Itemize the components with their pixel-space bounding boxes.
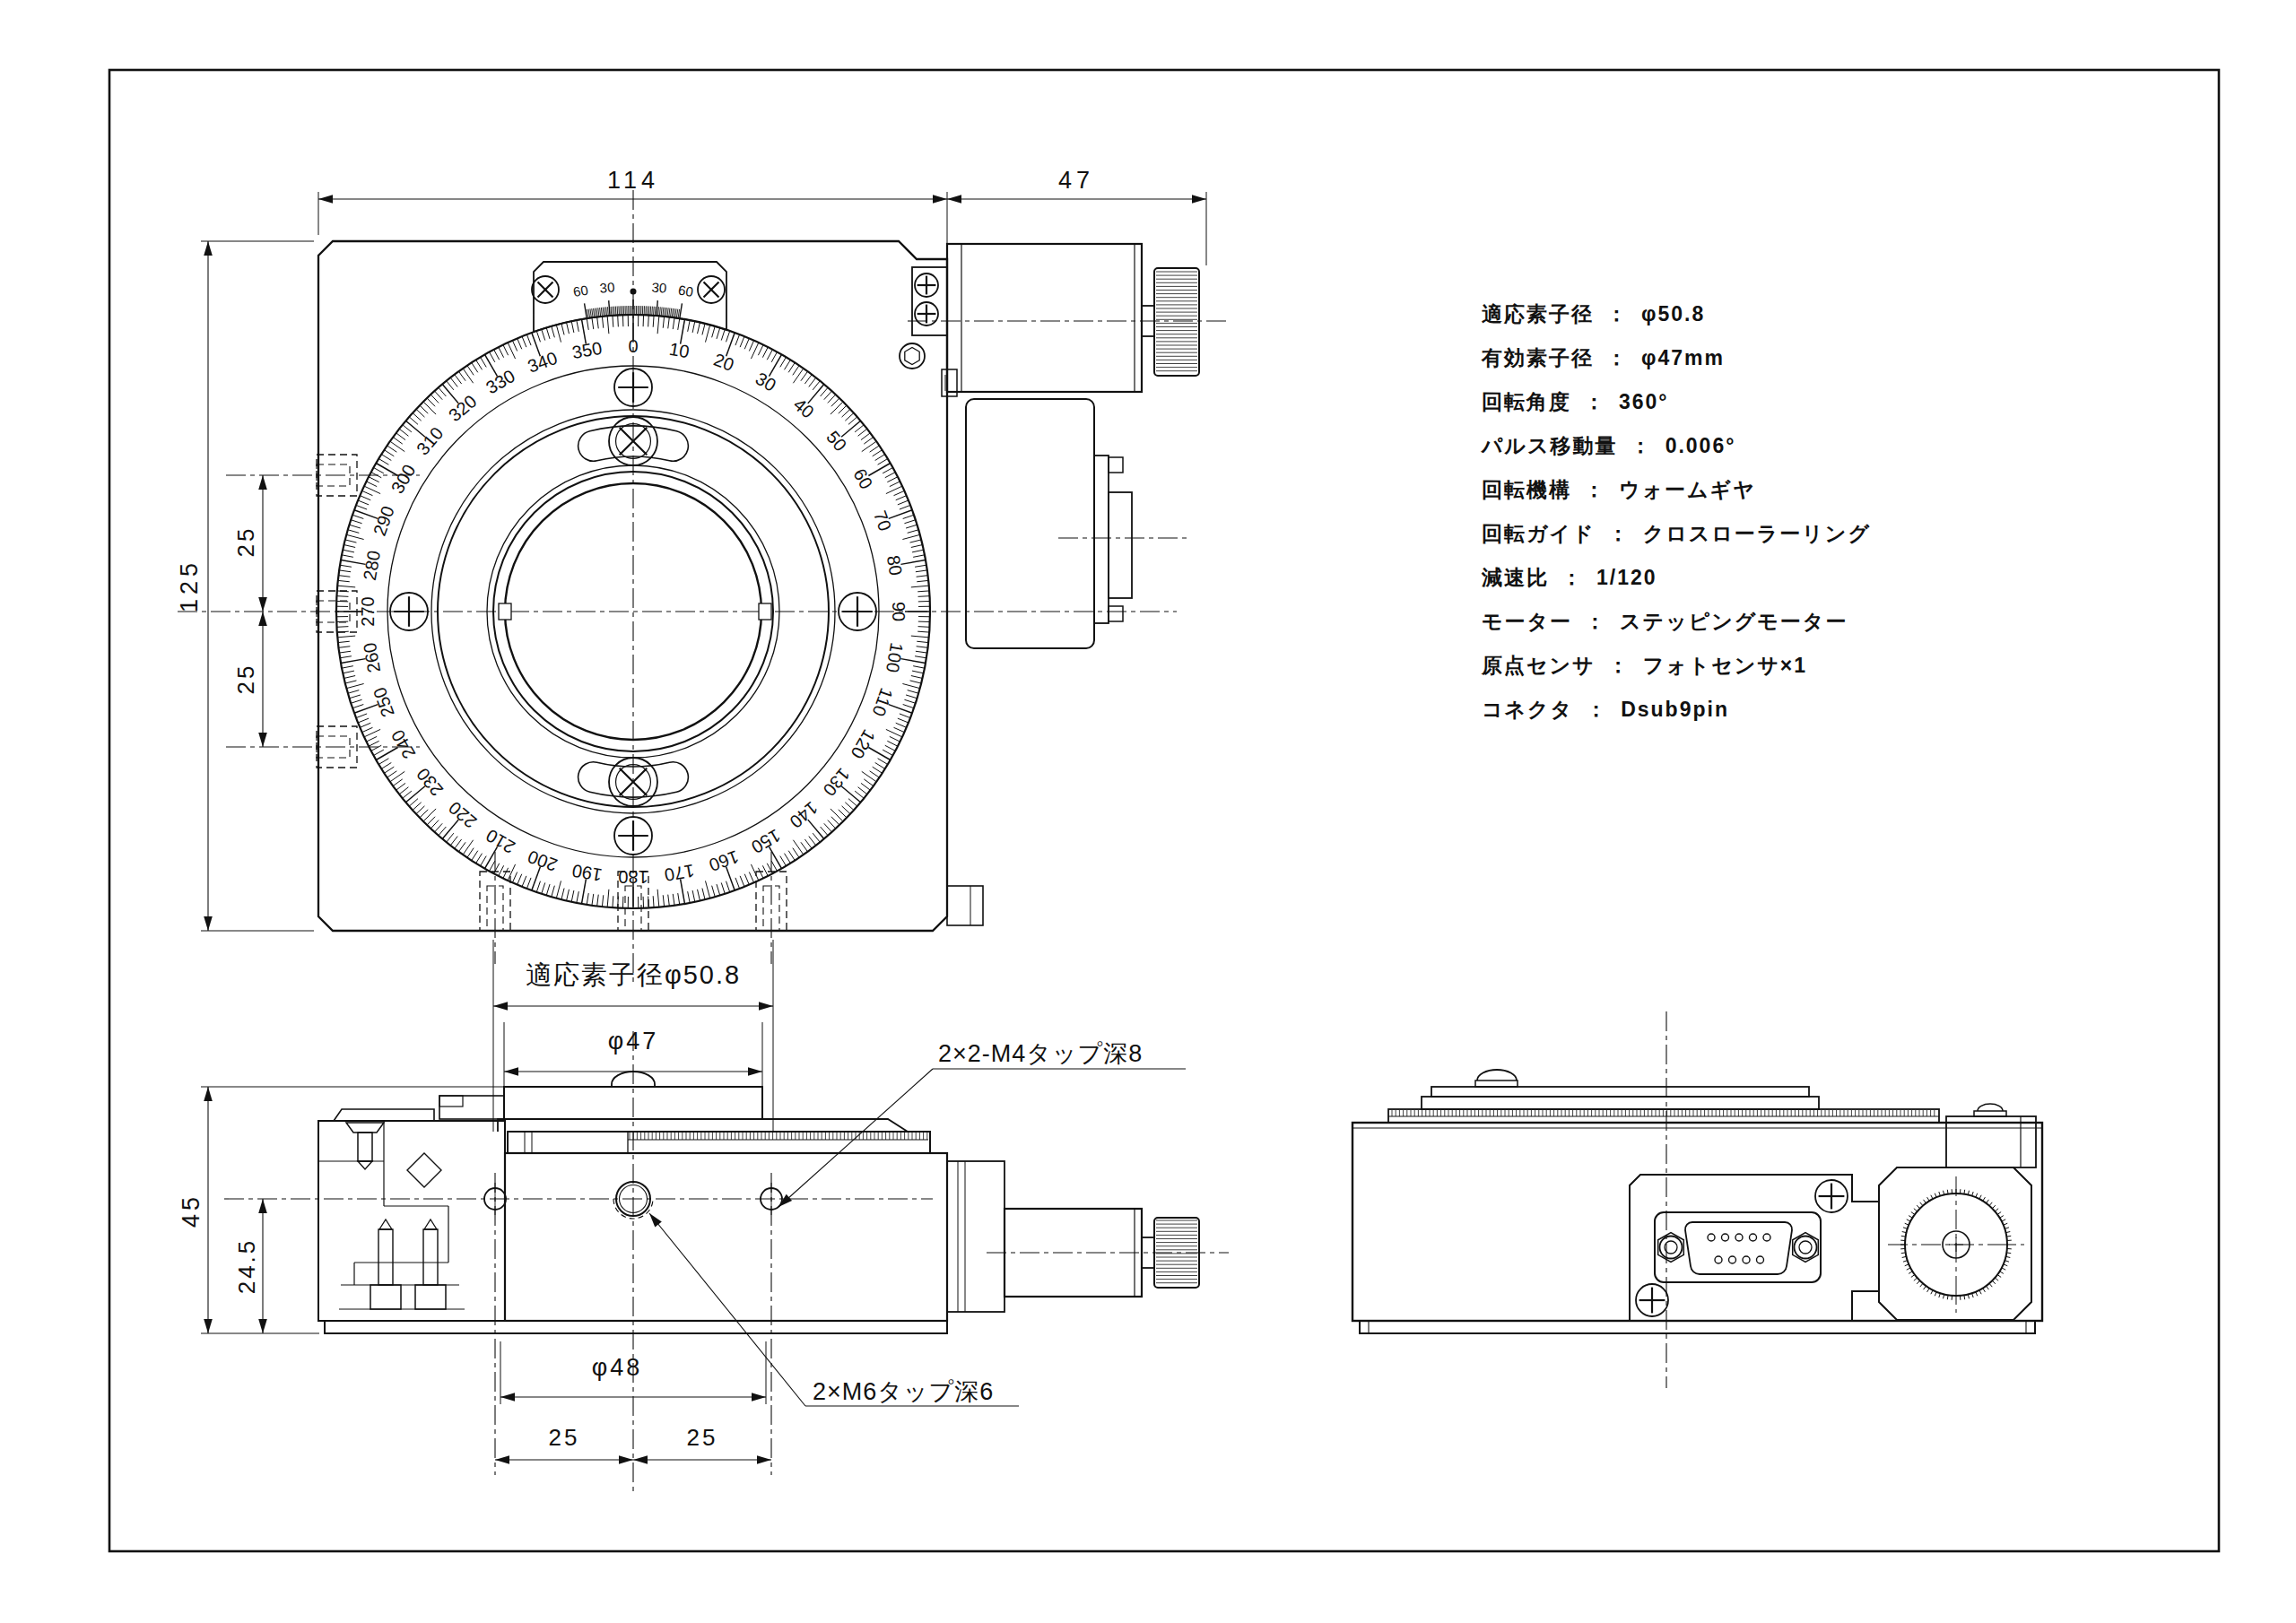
spec-colon: ：: [1631, 432, 1653, 460]
spec-label: コネクタ: [1482, 696, 1573, 724]
dial-tick: [336, 596, 348, 597]
vernier-label: 30: [599, 279, 615, 295]
spec-value: 1/120: [1596, 566, 1657, 590]
aperture-notch: [499, 603, 511, 620]
spec-colon: ：: [1561, 564, 1584, 592]
spec-value: フォトセンサ×1: [1643, 652, 1807, 680]
vernier-tick: [614, 307, 615, 316]
spec-value: クロスローラーリング: [1643, 520, 1871, 548]
spec-label: 適応素子径: [1482, 300, 1594, 328]
spec-label: 回転角度: [1482, 388, 1571, 416]
dial-tick: [648, 315, 649, 326]
vernier-tick: [652, 307, 653, 316]
label-aperture: 適応素子径φ50.8: [526, 960, 741, 989]
dial-number: 270: [358, 596, 378, 626]
dim-motor-width: 47: [1058, 167, 1094, 194]
dim-bolt-circle: φ48: [592, 1354, 643, 1381]
spec-label: 原点センサ: [1482, 652, 1596, 680]
spec-colon: ：: [1608, 652, 1631, 680]
dim-pitch-upper: 25: [232, 526, 259, 558]
spec-colon: ：: [1585, 608, 1607, 636]
dial-number: 90: [889, 602, 909, 621]
spec-value: Dsub9pin: [1621, 698, 1729, 722]
spec-row: コネクタ：Dsub9pin: [1482, 688, 2163, 732]
vernier-tick: [615, 307, 616, 316]
vernier-label: 60: [572, 282, 589, 299]
spec-label: 有効素子径: [1482, 344, 1594, 372]
spec-value: 0.006°: [1665, 434, 1736, 458]
spec-colon: ：: [1584, 476, 1606, 504]
dial-tick: [618, 315, 619, 326]
spec-row: 適応素子径：φ50.8: [1482, 292, 2163, 336]
spec-value: φ50.8: [1641, 302, 1705, 326]
dim-effective-dia: φ47: [608, 1028, 659, 1055]
spec-colon: ：: [1606, 344, 1629, 372]
spec-row: 回転角度：360°: [1482, 380, 2163, 424]
dial-number: 180: [618, 867, 648, 887]
dial-tick: [918, 627, 930, 628]
dim-pitch-left: 25: [549, 1424, 580, 1451]
spec-row: 減速比：1/120: [1482, 556, 2163, 600]
dial-number: 80: [883, 554, 907, 577]
aperture-notch: [759, 603, 771, 620]
spec-colon: ：: [1606, 300, 1629, 328]
spec-row: パルス移動量：0.006°: [1482, 424, 2163, 468]
spec-colon: ：: [1608, 520, 1631, 548]
dim-pitch-right: 25: [687, 1424, 718, 1451]
dim-side-height: 45: [178, 1193, 204, 1228]
spec-value: ステッピングモーター: [1620, 608, 1848, 636]
spec-label: 回転機構: [1482, 476, 1571, 504]
spec-colon: ：: [1586, 696, 1608, 724]
vernier-tick: [648, 306, 649, 315]
vernier-tick: [650, 307, 651, 316]
dial-number: 10: [668, 339, 691, 362]
spec-row: 回転機構：ウォームギヤ: [1482, 468, 2163, 512]
callout-m4-tap: 2×2-M4タップ深8: [938, 1040, 1143, 1067]
dim-top-width: 114: [607, 167, 659, 194]
spec-value: φ47mm: [1641, 346, 1725, 370]
vernier-tick: [617, 306, 618, 315]
dim-hole-height: 24.5: [233, 1238, 260, 1295]
dial-tick: [918, 596, 930, 597]
vernier-label: 60: [677, 282, 694, 299]
spec-list: 適応素子径：φ50.8 有効素子径：φ47mm 回転角度：360° パルス移動量…: [1482, 292, 2163, 732]
callout-m6-tap: 2×M6タップ深6: [813, 1378, 994, 1405]
drawing-sheet: 0102030405060708090100110120130140150160…: [0, 0, 2296, 1623]
spec-value: ウォームギヤ: [1619, 476, 1756, 504]
dim-pitch-lower: 25: [232, 664, 259, 695]
engineering-drawing: 0102030405060708090100110120130140150160…: [0, 0, 2296, 1623]
vernier-label: 30: [651, 279, 667, 295]
spec-row: 回転ガイド：クロスローラーリング: [1482, 512, 2163, 556]
spec-label: 減速比: [1482, 564, 1549, 592]
spec-row: 原点センサ：フォトセンサ×1: [1482, 644, 2163, 688]
dim-body-height: 125: [176, 559, 203, 612]
spec-row: 有効素子径：φ47mm: [1482, 336, 2163, 380]
vernier-zero-dot: [631, 289, 637, 295]
spec-label: モーター: [1482, 608, 1572, 636]
dial-tick: [336, 627, 348, 628]
spec-label: 回転ガイド: [1482, 520, 1596, 548]
spec-row: モーター：ステッピングモーター: [1482, 600, 2163, 644]
spec-value: 360°: [1619, 390, 1669, 414]
spec-label: パルス移動量: [1482, 432, 1618, 460]
dial-number: 0: [628, 336, 638, 356]
spec-colon: ：: [1584, 388, 1606, 416]
